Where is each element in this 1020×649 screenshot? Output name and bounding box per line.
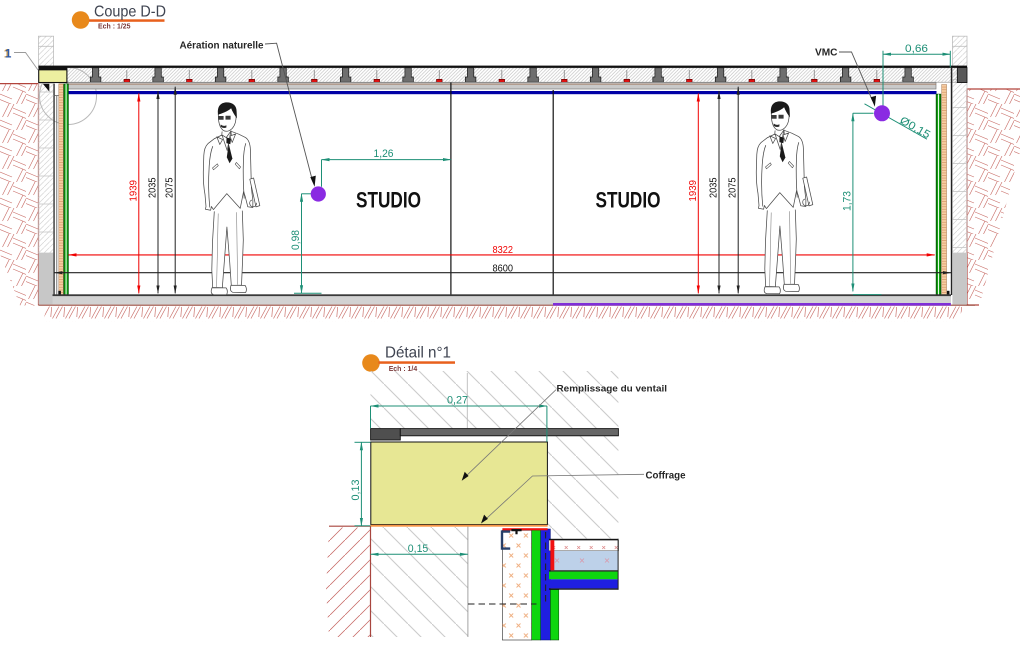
svg-text:0,98: 0,98 — [290, 230, 302, 250]
svg-text:1939: 1939 — [687, 180, 699, 202]
svg-text:0,15: 0,15 — [408, 543, 429, 555]
svg-text:2035: 2035 — [147, 177, 159, 198]
svg-text:Ech : 1/25: Ech : 1/25 — [98, 22, 131, 31]
svg-text:2035: 2035 — [708, 177, 720, 198]
svg-text:Détail n°1: Détail n°1 — [385, 344, 451, 361]
svg-text:Remplissage du ventail: Remplissage du ventail — [557, 384, 668, 395]
svg-text:VMC: VMC — [815, 48, 838, 59]
svg-text:2075: 2075 — [164, 177, 176, 198]
svg-text:STUDIO: STUDIO — [596, 188, 661, 213]
svg-text:1,26: 1,26 — [374, 148, 394, 160]
svg-text:1: 1 — [5, 49, 12, 61]
svg-text:8600: 8600 — [493, 262, 514, 274]
svg-text:Coffrage: Coffrage — [646, 470, 686, 481]
svg-text:STUDIO: STUDIO — [356, 188, 421, 213]
svg-text:Coupe D-D: Coupe D-D — [94, 3, 166, 20]
svg-text:0,66: 0,66 — [905, 43, 928, 55]
svg-text:2075: 2075 — [727, 177, 739, 198]
svg-text:1939: 1939 — [127, 180, 139, 202]
svg-text:Aération naturelle: Aération naturelle — [180, 40, 264, 51]
svg-text:8322: 8322 — [493, 244, 514, 256]
svg-text:0,13: 0,13 — [350, 480, 362, 501]
svg-text:0,27: 0,27 — [447, 394, 468, 406]
svg-text:1,73: 1,73 — [841, 191, 853, 211]
